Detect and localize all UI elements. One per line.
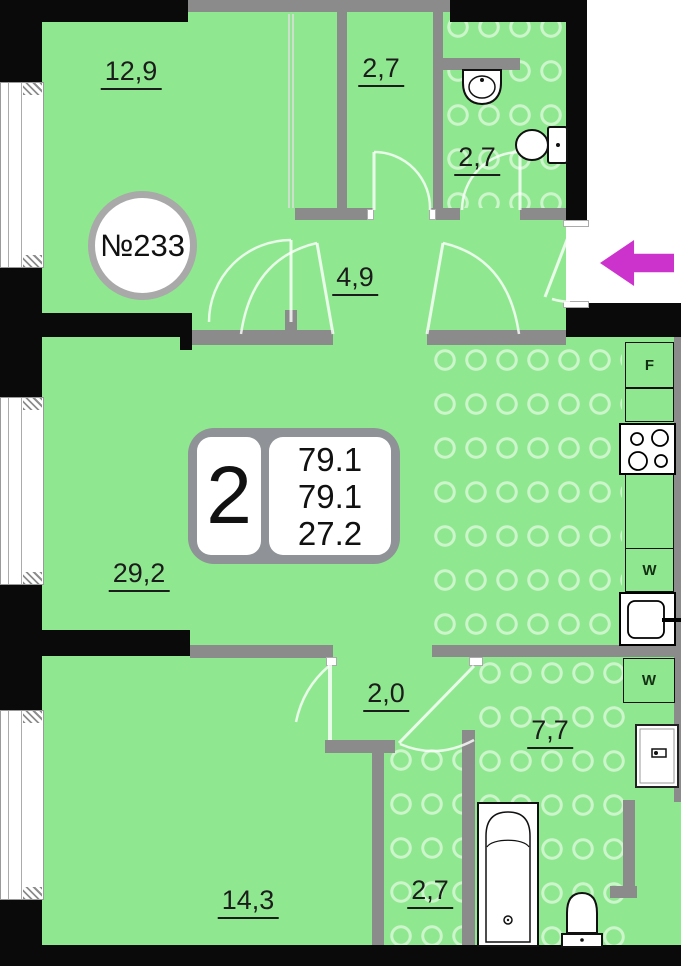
wall-segment <box>295 208 374 220</box>
wall-segment <box>443 58 520 70</box>
window <box>0 710 44 900</box>
tiles-corridor <box>386 745 464 945</box>
washer-label: W <box>642 672 656 689</box>
fridge-box: F <box>625 342 674 388</box>
tiles-bathroom-main <box>475 658 625 945</box>
wall-segment <box>0 945 681 966</box>
door-jamb <box>469 657 483 666</box>
window <box>0 82 44 268</box>
fridge-label: F <box>645 357 654 374</box>
entrance-opening <box>566 226 587 303</box>
room-area-label: 2,0 <box>363 679 409 712</box>
wall-segment <box>566 303 681 337</box>
tiles-bathroom-top <box>443 12 566 208</box>
wall-segment <box>337 12 347 212</box>
info-plate: 2 79.1 79.1 27.2 <box>188 428 400 564</box>
door-jamb <box>326 657 337 666</box>
room-area-label: 29,2 <box>109 559 170 592</box>
tiles-kitchen <box>430 345 622 645</box>
wall-segment <box>372 753 384 945</box>
window-hatch <box>23 83 42 95</box>
window-hatch <box>23 398 42 410</box>
room-area-label: 2,7 <box>454 143 500 176</box>
kitchen-counter-box <box>625 474 674 549</box>
wall-segment <box>610 886 637 898</box>
rooms-count: 2 <box>197 437 261 555</box>
room-area-label: 12,9 <box>101 57 162 90</box>
washer-box-2: W <box>623 658 675 703</box>
room-area-label: 2,7 <box>358 54 404 87</box>
wall-segment <box>623 800 635 898</box>
apartment-number: №233 <box>100 228 185 264</box>
room-area-label: 14,3 <box>218 886 279 919</box>
wall-segment <box>188 0 450 12</box>
window-frame-line <box>21 83 22 267</box>
kitchen-cabinet-box <box>625 388 674 422</box>
wall-segment <box>180 313 192 350</box>
window-frame-line <box>21 711 22 899</box>
wall-segment <box>432 645 681 657</box>
room-area-label: 7,7 <box>527 716 573 749</box>
wall-segment <box>190 645 333 658</box>
door-jamb <box>429 209 436 220</box>
door-jamb <box>563 301 589 308</box>
wall-segment <box>325 740 395 753</box>
area-total: 79.1 <box>298 441 362 478</box>
window <box>0 397 44 585</box>
wall-segment <box>462 730 475 945</box>
window-frame-line <box>8 83 9 267</box>
room-area-label: 4,9 <box>332 263 378 296</box>
wall-segment <box>674 337 681 802</box>
apartment-number-badge: №233 <box>88 191 197 300</box>
window-hatch <box>23 255 42 267</box>
floor-plan: F W W <box>0 0 681 966</box>
window-frame-line <box>8 398 9 584</box>
area-total-2: 79.1 <box>298 478 362 515</box>
window-hatch <box>23 887 42 899</box>
window-hatch <box>23 711 42 723</box>
wall-segment <box>433 12 443 210</box>
wall-segment <box>0 313 192 337</box>
wall-segment <box>427 330 566 345</box>
window-hatch <box>23 572 42 584</box>
area-living: 27.2 <box>298 515 362 552</box>
washer-label: W <box>642 562 656 579</box>
wall-segment <box>38 630 190 656</box>
door-jamb <box>563 220 589 227</box>
wall-segment <box>192 330 333 345</box>
washer-box: W <box>625 548 674 592</box>
wall-segment <box>566 0 587 226</box>
room-area-label: 2,7 <box>407 876 453 909</box>
window-frame-line <box>21 398 22 584</box>
area-values: 79.1 79.1 27.2 <box>269 437 391 555</box>
door-jamb <box>367 209 374 220</box>
wall-segment <box>520 208 566 220</box>
window-frame-line <box>8 711 9 899</box>
